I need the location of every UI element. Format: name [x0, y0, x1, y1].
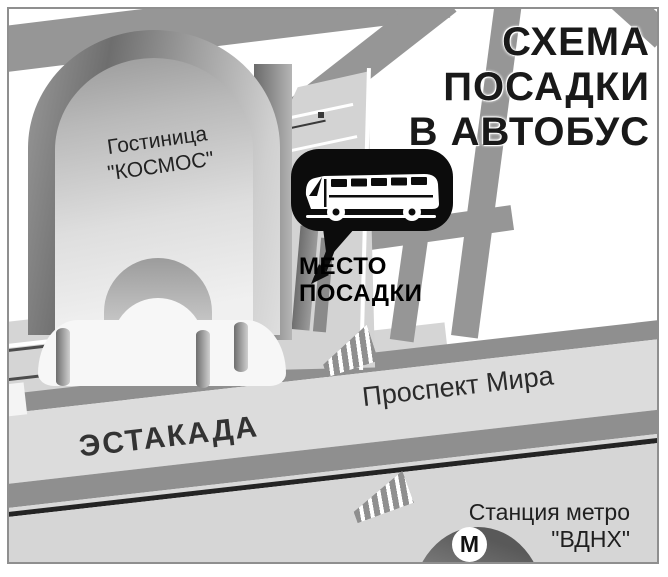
hotel-column: [234, 322, 248, 372]
title-line1: СХЕМА ПОСАДКИ: [300, 20, 650, 110]
metro-station-line2: "ВДНХ": [420, 526, 630, 553]
page-title: СХЕМА ПОСАДКИ В АВТОБУС: [300, 20, 650, 155]
map-scheme: ЭСТАКАДА Проспект Мира: [0, 0, 668, 577]
boarding-marker-bubble: [291, 149, 453, 231]
boarding-point-label: МЕСТО ПОСАДКИ: [299, 253, 422, 307]
bus-icon: [291, 149, 453, 231]
hotel-column: [196, 330, 210, 388]
boarding-label-line1: МЕСТО: [299, 253, 422, 280]
title-line2: В АВТОБУС: [300, 110, 650, 155]
metro-station-label: Станция метро "ВДНХ": [420, 499, 630, 553]
hotel-column: [56, 328, 70, 386]
map-canvas: ЭСТАКАДА Проспект Мира: [9, 9, 657, 562]
boarding-label-line2: ПОСАДКИ: [299, 280, 422, 307]
metro-station-line1: Станция метро: [420, 499, 630, 526]
